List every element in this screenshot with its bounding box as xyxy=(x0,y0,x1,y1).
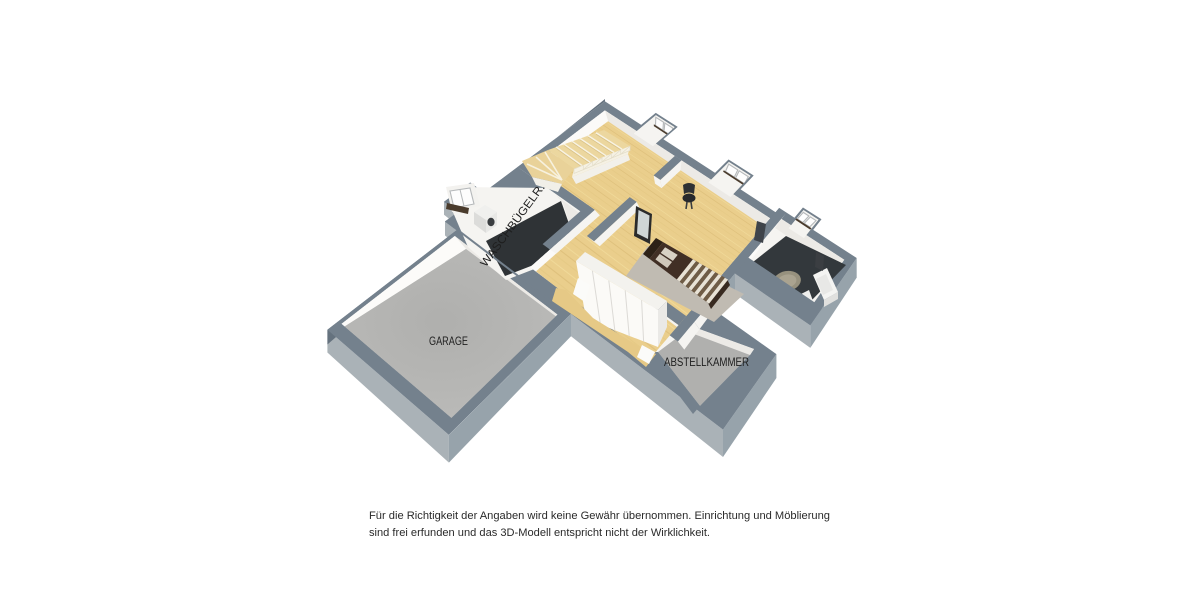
svg-text:GARAGE: GARAGE xyxy=(429,334,468,348)
svg-text:Für die Richtigkeit der Angabe: Für die Richtigkeit der Angaben wird kei… xyxy=(369,510,830,522)
svg-text:ABSTELLKAMMER: ABSTELLKAMMER xyxy=(664,355,749,369)
svg-text:sind frei erfunden und das 3D-: sind frei erfunden und das 3D-Modell ent… xyxy=(369,527,710,539)
